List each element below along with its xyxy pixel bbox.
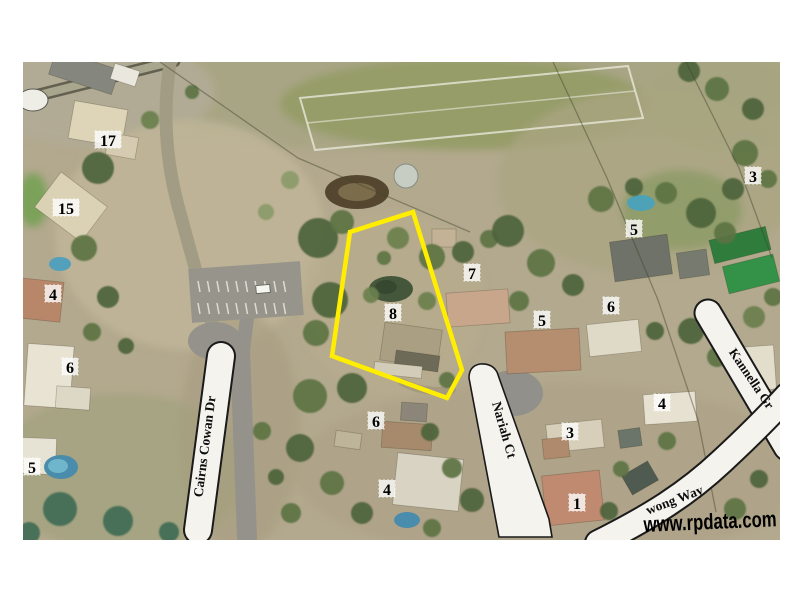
tree-canopy bbox=[97, 286, 119, 308]
water-feature bbox=[394, 512, 420, 528]
asphalt-road bbox=[240, 350, 247, 537]
tree-canopy bbox=[600, 502, 618, 520]
tree-canopy bbox=[655, 182, 677, 204]
tree-canopy bbox=[303, 320, 329, 346]
tree-canopy bbox=[460, 488, 484, 512]
building-roof bbox=[432, 229, 456, 247]
tree-canopy bbox=[423, 519, 441, 537]
lot-number-label: 5 bbox=[28, 460, 36, 477]
aerial-map[interactable]: Cairns Cowan DrNariah CtKannella Grwong … bbox=[23, 62, 780, 540]
tree-canopy bbox=[337, 373, 367, 403]
lot-number-label: 4 bbox=[49, 287, 57, 304]
tree-canopy bbox=[625, 178, 643, 196]
tree-canopy bbox=[452, 241, 474, 263]
building-roof bbox=[55, 386, 90, 410]
tree-canopy bbox=[562, 274, 584, 296]
tree-canopy bbox=[418, 292, 436, 310]
lot-number-label: 5 bbox=[538, 313, 546, 330]
lot-number-label: 4 bbox=[383, 482, 391, 499]
lot-number-label: 15 bbox=[58, 201, 74, 218]
tree-canopy bbox=[286, 434, 314, 462]
tree-canopy bbox=[281, 171, 299, 189]
water-feature bbox=[394, 164, 418, 188]
tree-canopy bbox=[320, 471, 344, 495]
tree-canopy bbox=[83, 323, 101, 341]
lot-number-label: 5 bbox=[630, 222, 638, 239]
tree-canopy bbox=[705, 77, 729, 101]
tree-canopy bbox=[686, 198, 716, 228]
tree-canopy bbox=[646, 322, 664, 340]
lot-number-label: 3 bbox=[566, 425, 574, 442]
tree-canopy bbox=[293, 379, 327, 413]
tree-canopy bbox=[253, 422, 271, 440]
tree-canopy bbox=[43, 492, 77, 526]
tree-canopy bbox=[588, 186, 614, 212]
tree-canopy bbox=[268, 469, 284, 485]
tree-canopy bbox=[722, 178, 744, 200]
parked-car bbox=[256, 284, 271, 293]
tree-canopy bbox=[442, 458, 462, 478]
tree-canopy bbox=[363, 287, 379, 303]
tree-canopy bbox=[527, 249, 555, 277]
tree-canopy bbox=[750, 470, 768, 488]
tree-canopy bbox=[281, 503, 301, 523]
lot-number-label: 3 bbox=[749, 169, 757, 186]
tree-canopy bbox=[258, 204, 274, 220]
tree-canopy bbox=[141, 111, 159, 129]
tree-canopy bbox=[71, 235, 97, 261]
aerial-scene: Cairns Cowan DrNariah CtKannella Grwong … bbox=[23, 62, 780, 540]
parking-lot bbox=[188, 261, 303, 323]
tree-canopy bbox=[742, 98, 764, 120]
water-feature bbox=[338, 183, 376, 201]
page: Cairns Cowan DrNariah CtKannella Grwong … bbox=[0, 0, 800, 600]
tree-canopy bbox=[714, 222, 736, 244]
tree-canopy bbox=[613, 461, 629, 477]
building-roof bbox=[334, 430, 362, 449]
lot-number-label: 4 bbox=[658, 396, 666, 413]
tree-canopy bbox=[759, 170, 777, 188]
water-feature bbox=[627, 195, 655, 211]
tree-canopy bbox=[387, 227, 409, 249]
building-roof bbox=[400, 402, 427, 422]
tree-canopy bbox=[351, 502, 373, 524]
building-roof bbox=[505, 328, 581, 374]
tree-canopy bbox=[658, 432, 676, 450]
tree-canopy bbox=[118, 338, 134, 354]
tree-canopy bbox=[509, 291, 529, 311]
tree-canopy bbox=[82, 152, 114, 184]
tree-canopy bbox=[377, 251, 391, 265]
lot-number-label: 6 bbox=[607, 299, 615, 316]
building-roof bbox=[446, 289, 510, 327]
lot-number-label: 6 bbox=[372, 414, 380, 431]
building-roof bbox=[618, 428, 642, 449]
lot-number-label: 8 bbox=[389, 306, 397, 323]
water-feature bbox=[23, 89, 48, 111]
water-feature bbox=[49, 257, 71, 271]
lot-number-label: 6 bbox=[66, 360, 74, 377]
lot-number-label: 1 bbox=[573, 496, 581, 513]
building-roof bbox=[676, 249, 709, 279]
tree-canopy bbox=[421, 423, 439, 441]
lot-number-label: 7 bbox=[468, 266, 476, 283]
tree-canopy bbox=[743, 306, 765, 328]
tree-canopy bbox=[103, 506, 133, 536]
lot-number-label: 17 bbox=[100, 133, 116, 150]
water-feature bbox=[48, 459, 68, 473]
building-roof bbox=[586, 319, 641, 356]
tree-canopy bbox=[492, 215, 524, 247]
